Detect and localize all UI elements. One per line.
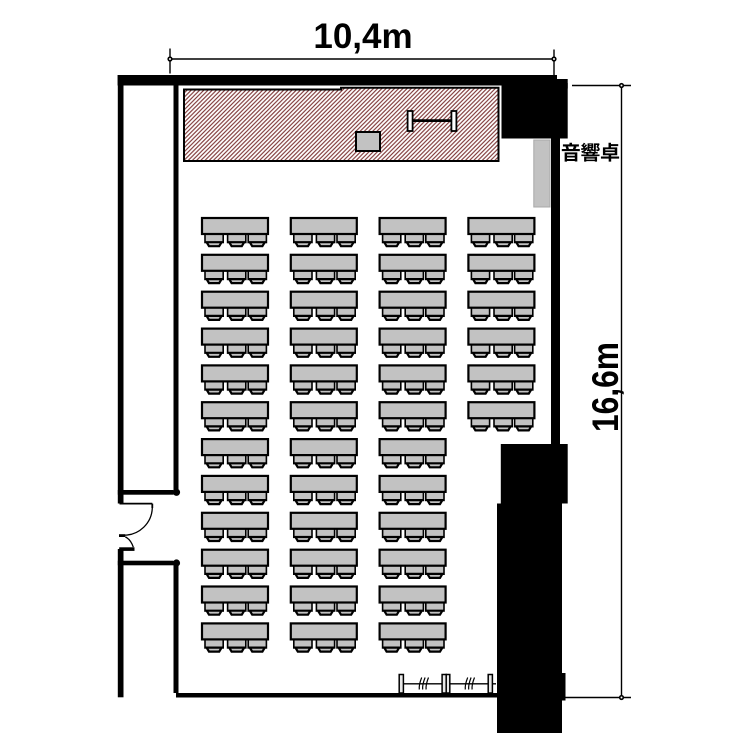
- svg-text:10,4m: 10,4m: [313, 17, 412, 56]
- svg-text:16,6m: 16,6m: [585, 342, 626, 432]
